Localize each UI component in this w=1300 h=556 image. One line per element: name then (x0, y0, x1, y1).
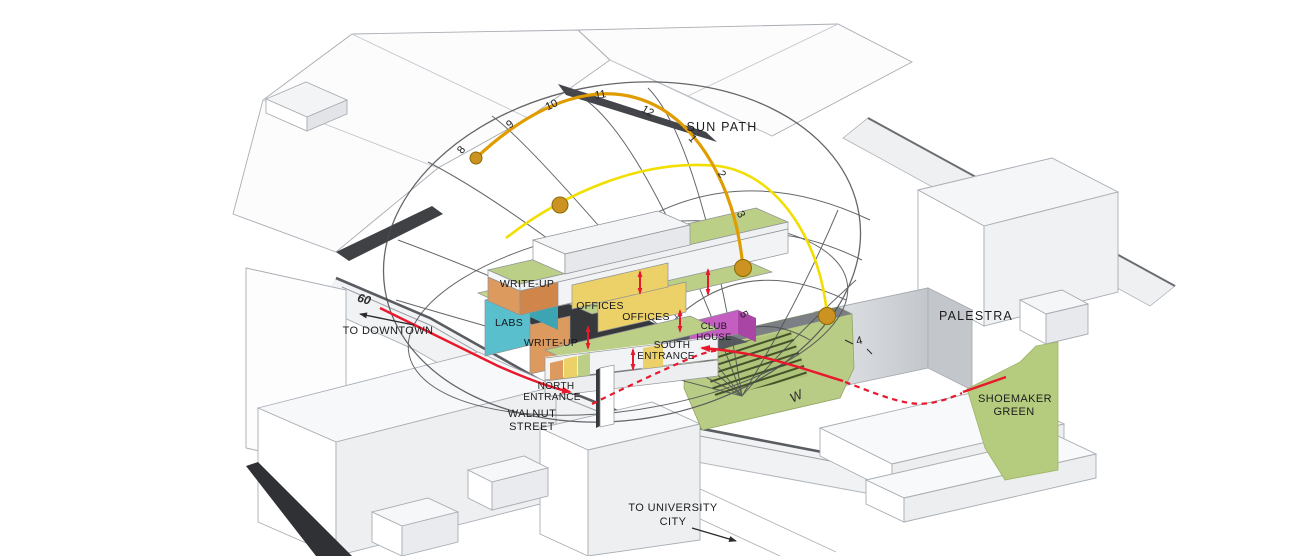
entrance-pillar (600, 365, 614, 427)
diagram-svg: SUN PATH 8 9 10 11 12 1 2 3 5 4 WRITE-UP… (0, 0, 1300, 556)
sun-dot-morning (552, 197, 568, 213)
label-north-entrance-2: ENTRANCE (523, 392, 580, 403)
label-offices-mid: OFFICES (622, 311, 670, 323)
label-south-entrance-2: ENTRANCE (637, 351, 694, 362)
red-path-dashed-2 (845, 382, 962, 404)
label-writeup-lower: WRITE-UP (524, 337, 578, 349)
label-sun-path: SUN PATH (687, 120, 758, 134)
label-north-entrance-1: NORTH (538, 381, 575, 392)
sun-dot-8am (470, 152, 482, 164)
label-to-university-2: CITY (660, 516, 687, 528)
label-shoemaker-1: SHOEMAKER (978, 393, 1052, 405)
label-labs: LABS (495, 317, 523, 329)
sun-dot-afternoon (735, 260, 752, 277)
label-offices-upper: OFFICES (576, 300, 624, 312)
pillar-slot-shadow (596, 368, 600, 428)
label-clubhouse-2: HOUSE (696, 332, 731, 343)
site-diagram: SUN PATH 8 9 10 11 12 1 2 3 5 4 WRITE-UP… (0, 0, 1300, 556)
label-clubhouse-1: CLUB (701, 321, 728, 332)
label-to-university-1: TO UNIVERSITY (628, 502, 718, 514)
label-shoemaker-2: GREEN (993, 406, 1034, 418)
label-to-downtown: TO DOWNTOWN (343, 325, 434, 337)
sun-hour-1: 1 (686, 133, 699, 146)
sun-dot-evening (819, 308, 836, 325)
label-palestra: PALESTRA (939, 309, 1013, 323)
label-south-entrance-1: SOUTH (654, 340, 691, 351)
label-walnut-2: STREET (509, 421, 555, 433)
label-walnut-1: WALNUT (508, 408, 556, 420)
label-writeup-upper: WRITE-UP (500, 278, 554, 290)
sun-hour-11: 11 (594, 88, 607, 102)
